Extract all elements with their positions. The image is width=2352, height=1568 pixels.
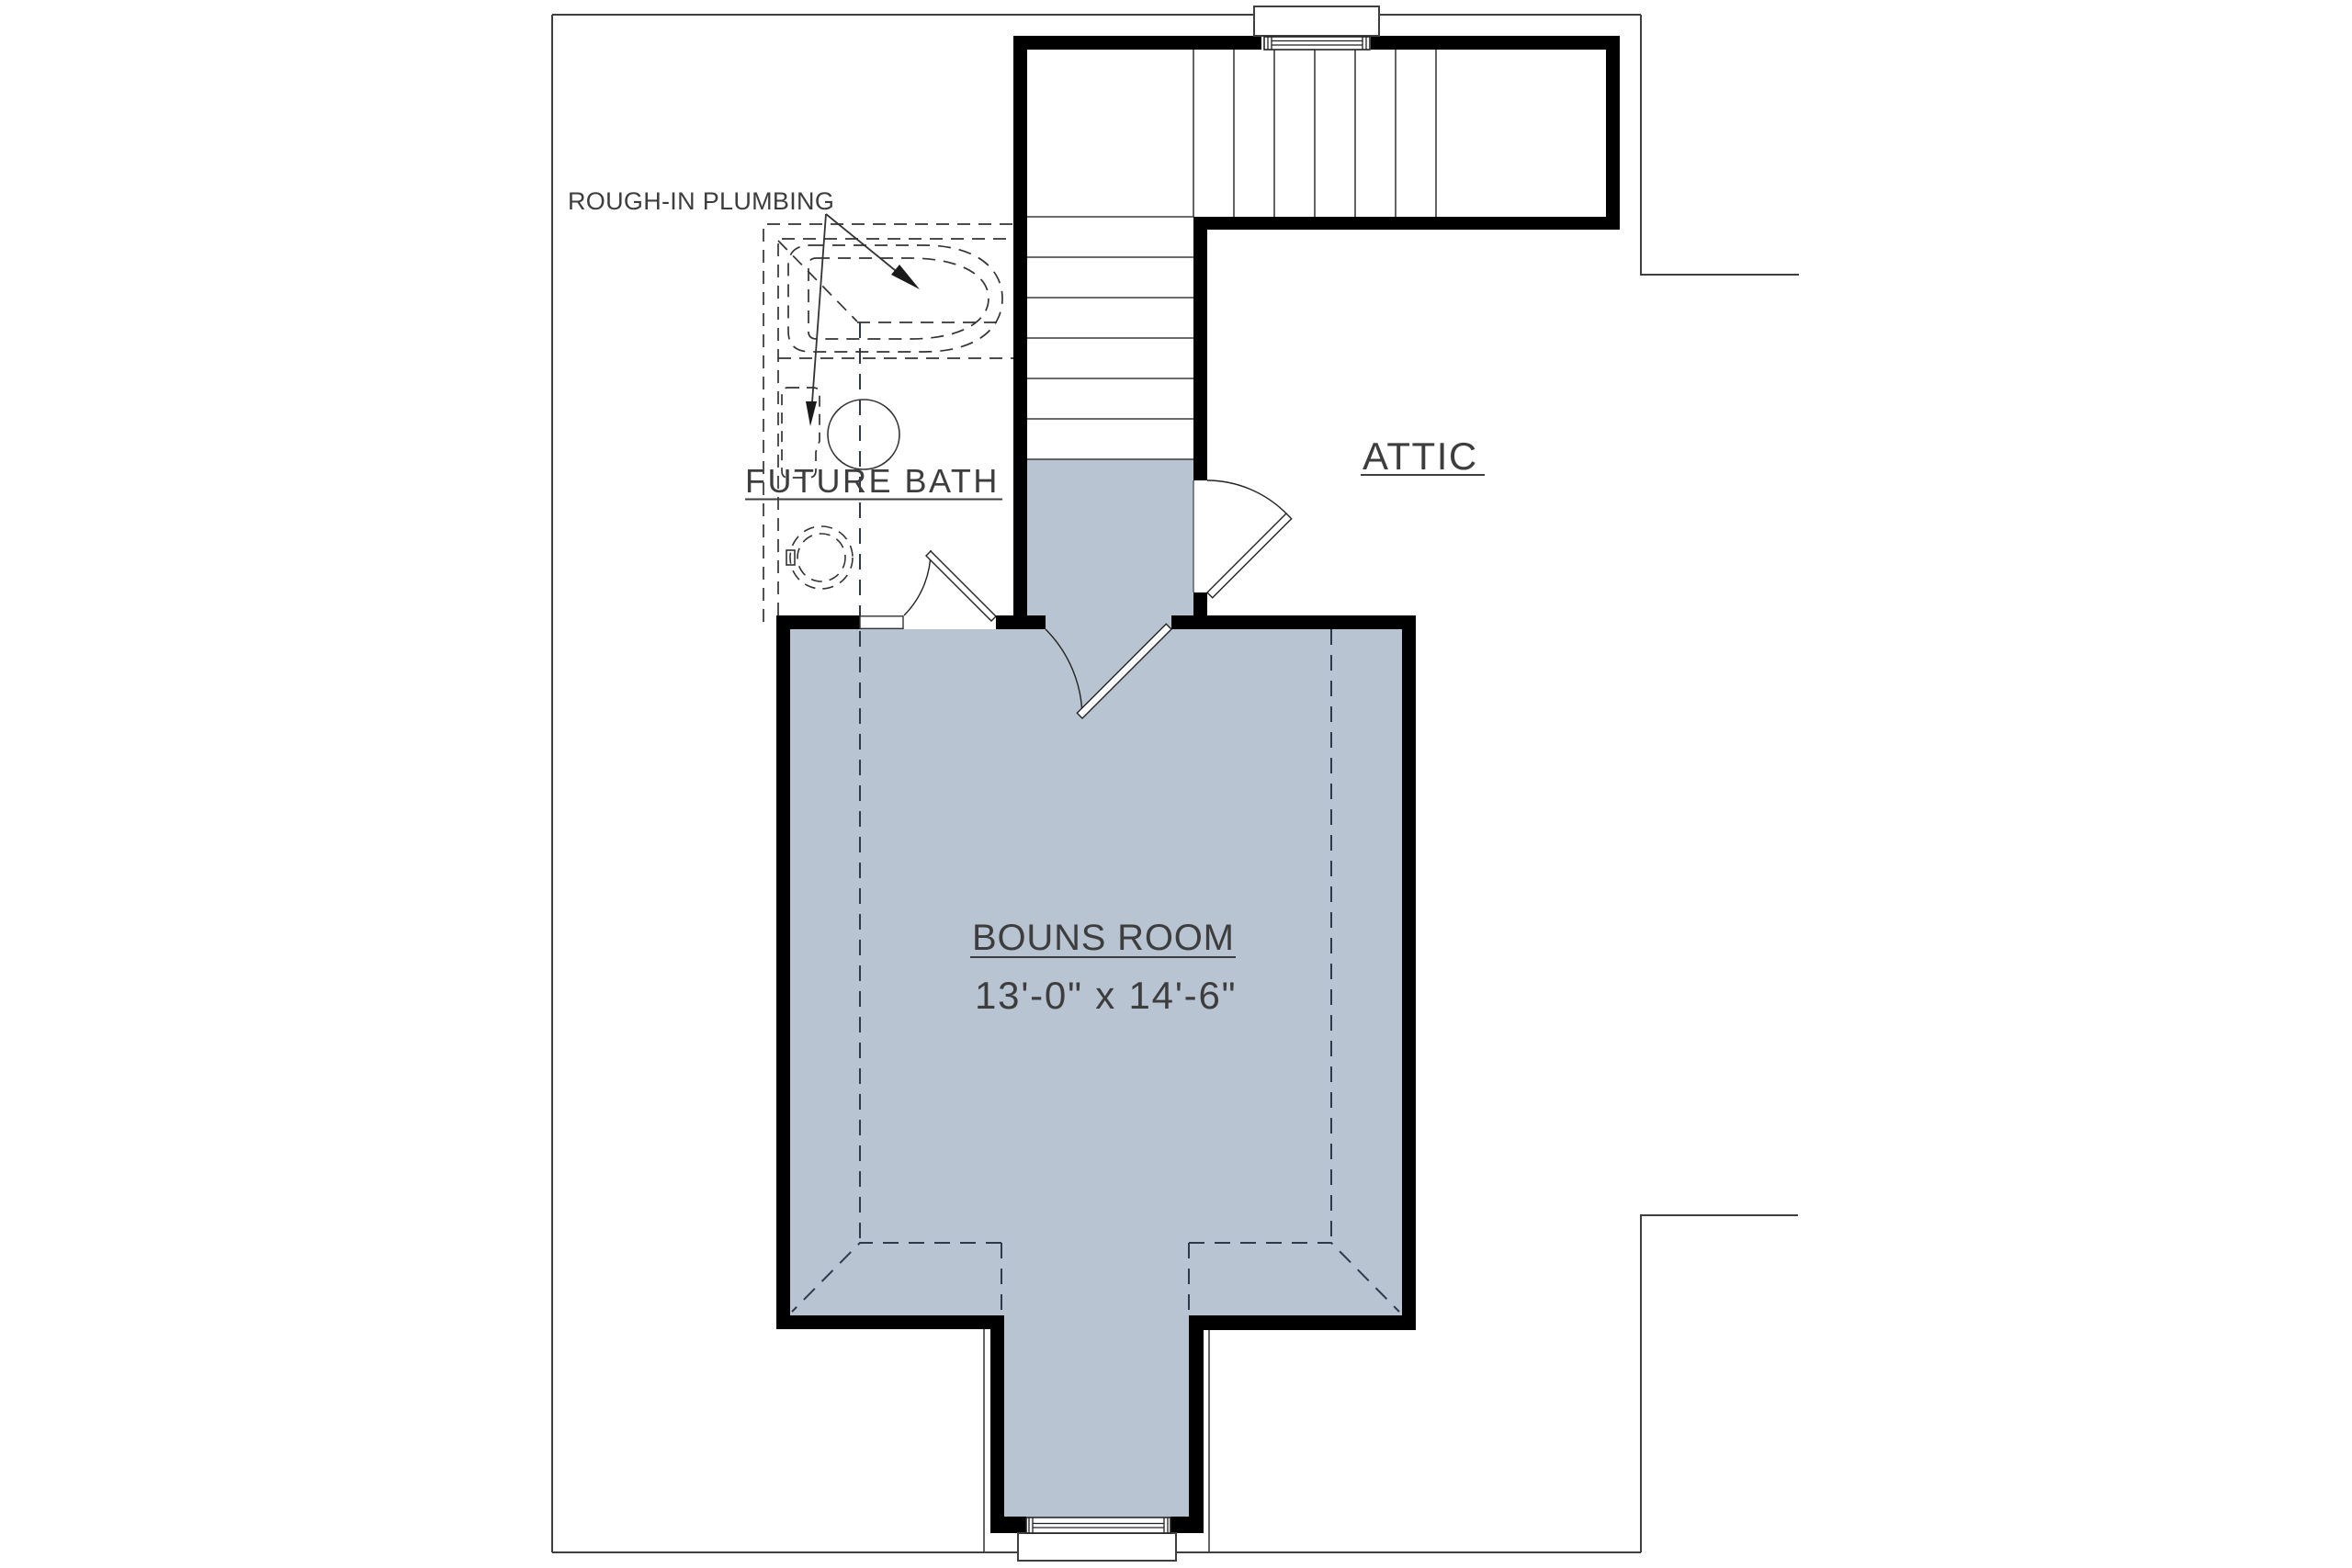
- svg-text:ROUGH-IN PLUMBING: ROUGH-IN PLUMBING: [568, 187, 834, 215]
- svg-text:ATTIC: ATTIC: [1363, 434, 1478, 478]
- svg-text:13'-0" x 14'-6": 13'-0" x 14'-6": [975, 974, 1237, 1017]
- svg-text:FUTURE BATH: FUTURE BATH: [745, 462, 1000, 500]
- svg-text:BOUNS ROOM: BOUNS ROOM: [972, 918, 1235, 958]
